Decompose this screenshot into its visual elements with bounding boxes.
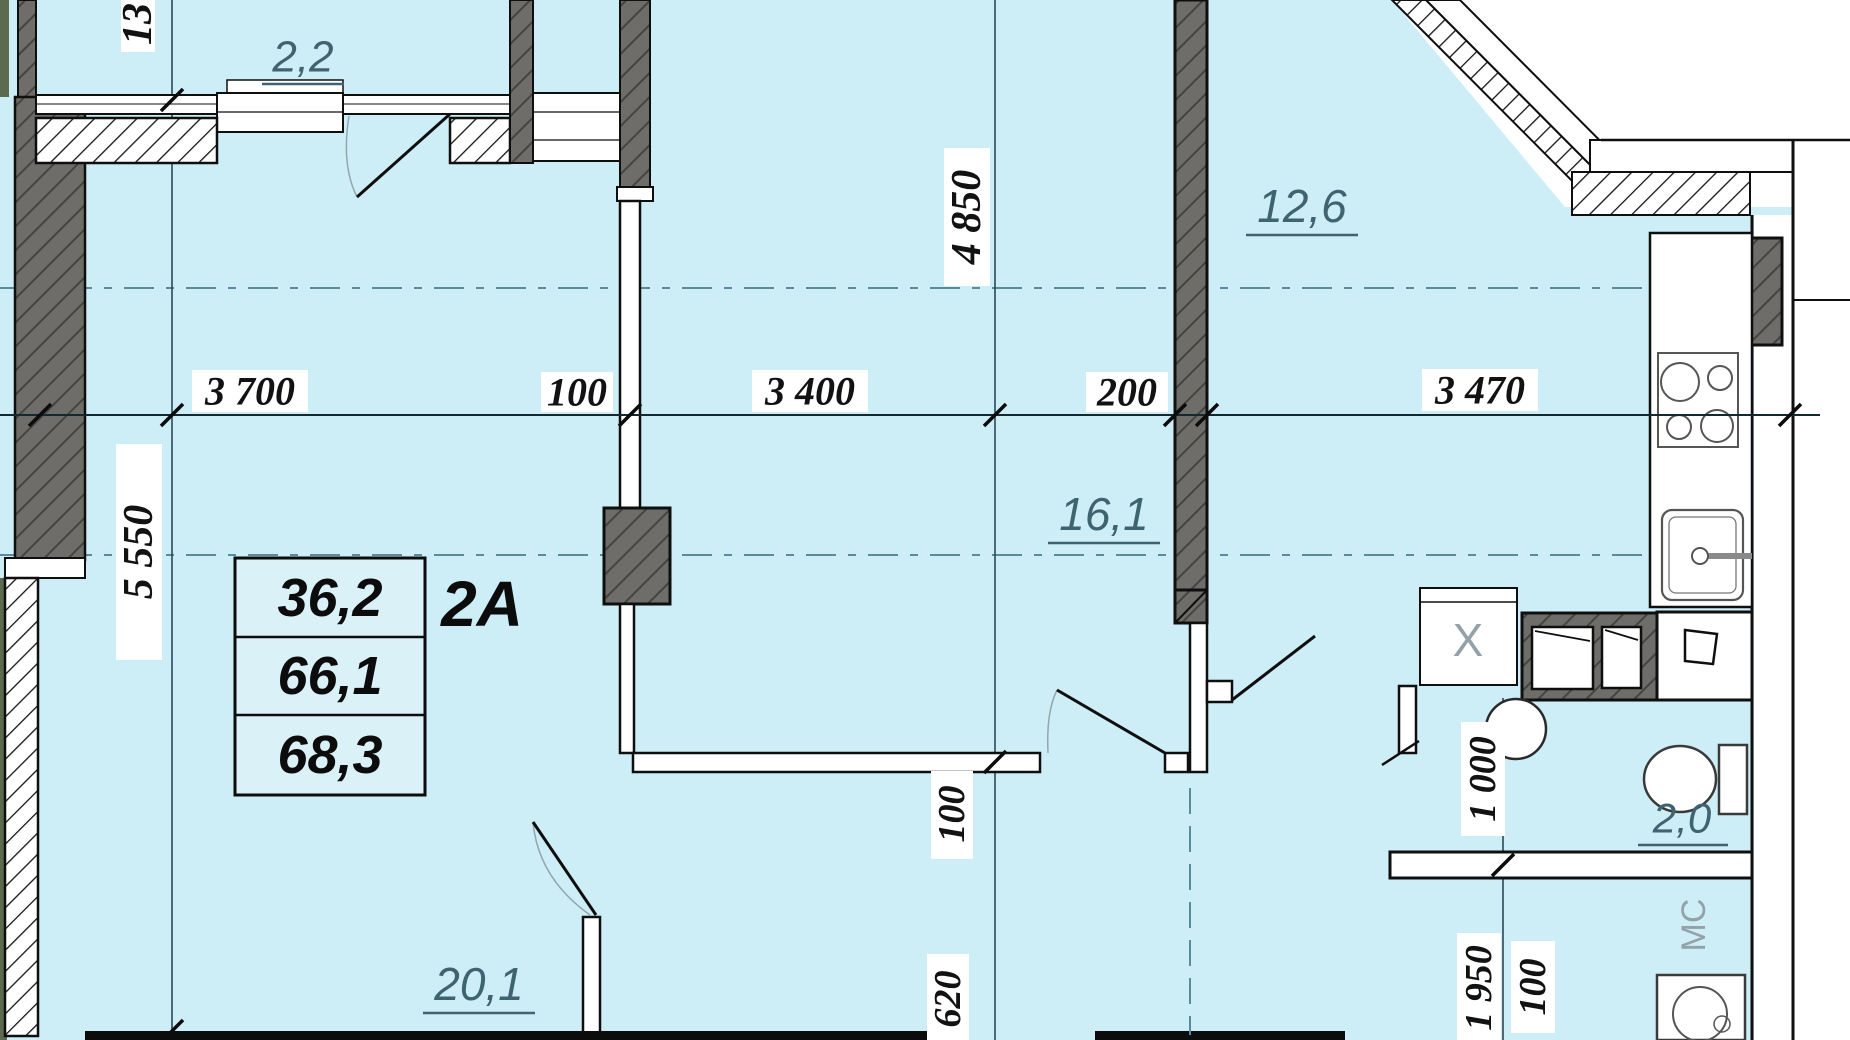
balcony-left-wall	[18, 0, 36, 97]
room-label-living: 20,1	[433, 958, 524, 1010]
bottom-wall-bar-2	[1095, 1031, 1345, 1040]
dim-13-cut: 13	[115, 3, 161, 45]
interior-wall-lower	[620, 604, 634, 753]
top-wall-post-cap	[617, 187, 653, 201]
left-outer-wall-lower	[5, 578, 38, 1036]
dim-3470: 3 470	[1434, 368, 1525, 413]
balcony-wall-hatch-left	[36, 118, 217, 163]
unit-code: 2A	[440, 568, 523, 640]
dim-5550: 5 550	[116, 505, 162, 600]
balcony-wall-hatch-right	[450, 118, 510, 163]
room-label-wc: 2,0	[1652, 795, 1712, 842]
dim-100-wall: 100	[547, 370, 607, 415]
area-total-value: 66,1	[277, 646, 382, 706]
dim-100-right: 100	[1512, 959, 1554, 1016]
wc-left-wall	[1190, 623, 1207, 772]
top-wall-post-1	[510, 0, 533, 163]
left-outer-wall-upper	[15, 97, 85, 560]
washer-label: МС	[1675, 899, 1713, 952]
room-label-bedroom: 16,1	[1059, 488, 1149, 540]
top-window-2	[533, 93, 620, 161]
floor-plan-canvas: 3 700 100 3 400 200 3 470 4 850 5 550 13…	[0, 0, 1850, 1040]
bottom-wall-bar-1	[85, 1031, 935, 1040]
left-wall-step	[5, 558, 85, 578]
north-wall-hatch	[1572, 172, 1750, 215]
living-door-jamb	[583, 917, 600, 1040]
wc-bottom-wall	[1390, 852, 1752, 878]
bath-corner-flap	[1685, 630, 1717, 664]
hall-wall-horizontal	[633, 753, 1040, 772]
dim-200: 200	[1096, 370, 1157, 415]
central-wall	[1175, 0, 1207, 590]
boiler-label: X	[1453, 614, 1484, 666]
dim-100-mid: 100	[931, 786, 973, 843]
dim-1950: 1 950	[1458, 945, 1500, 1031]
north-wall-face	[1590, 140, 1793, 172]
area-overall-value: 68,3	[277, 725, 382, 785]
left-green-strip-top	[0, 0, 9, 97]
wc-door-stub	[1207, 681, 1232, 702]
washing-machine-icon	[1657, 975, 1745, 1040]
room-label-balcony: 2,2	[271, 33, 333, 82]
interior-wall-upper	[620, 201, 640, 508]
column	[604, 508, 670, 604]
dim-3700: 3 700	[204, 369, 295, 414]
vestibule-wall	[1399, 686, 1416, 753]
area-living-value: 36,2	[277, 568, 382, 628]
top-wall-post-2	[620, 0, 650, 187]
floor-plan: 3 700 100 3 400 200 3 470 4 850 5 550 13…	[0, 0, 1850, 1040]
kitchen-sink-icon	[1662, 510, 1752, 600]
vent-shaft-2	[1602, 627, 1641, 688]
room-label-kitchen: 12,6	[1257, 180, 1347, 232]
dim-4850: 4 850	[944, 170, 990, 266]
dim-1000: 1 000	[1462, 736, 1504, 822]
bedroom-door-jamb	[1165, 753, 1188, 772]
kitchen-stove-icon	[1658, 353, 1738, 447]
dim-3400: 3 400	[764, 369, 855, 414]
dim-620: 620	[927, 971, 969, 1028]
